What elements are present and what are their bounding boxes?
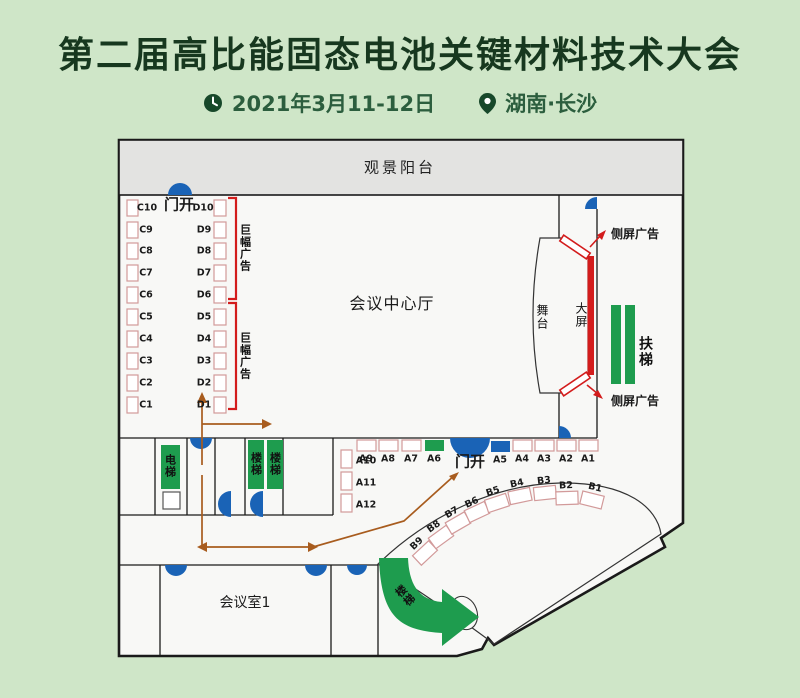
elevator-block <box>161 445 180 489</box>
stage-shape <box>533 238 588 393</box>
elevator-cab-box <box>163 492 180 509</box>
escalator-bar-right <box>625 305 635 384</box>
stairs-bar-right <box>267 440 283 489</box>
booth-a6-green <box>425 440 444 451</box>
stairs-bar-left <box>248 440 264 489</box>
big-screen-bar <box>588 256 595 375</box>
escalator-bar-left <box>611 305 621 384</box>
balcony-band <box>119 140 683 195</box>
booth-a5-blue <box>491 441 510 452</box>
booths-a-side <box>341 450 352 512</box>
floor-plan <box>0 0 800 698</box>
